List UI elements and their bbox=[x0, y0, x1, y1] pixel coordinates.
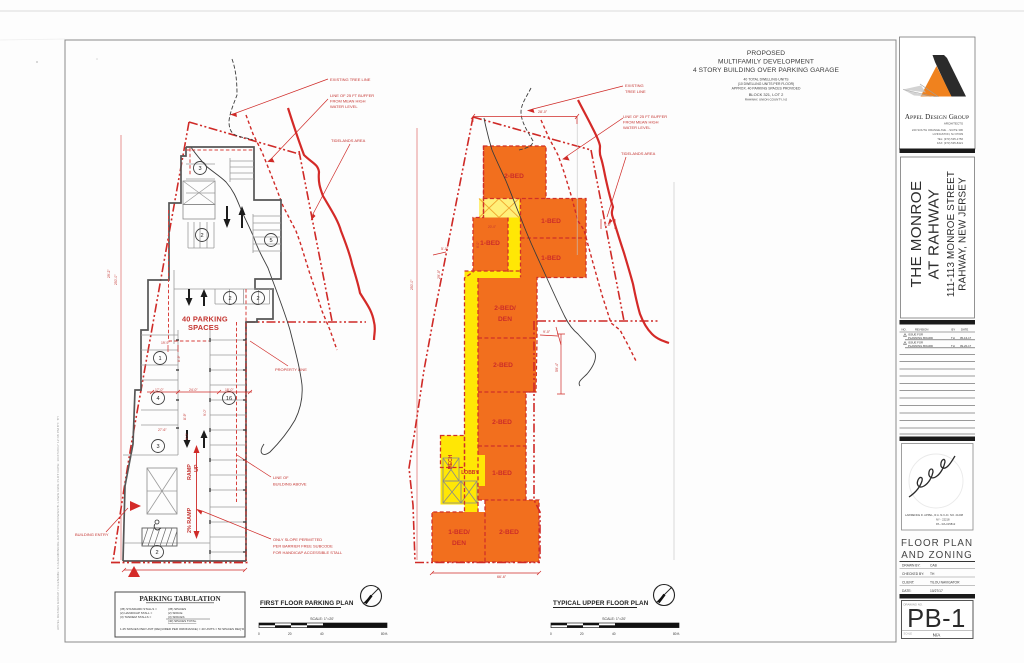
svg-text:PER BARRIER FREE SUBCODE: PER BARRIER FREE SUBCODE bbox=[273, 544, 333, 549]
svg-text:5'-0": 5'-0" bbox=[441, 247, 449, 251]
svg-text:FLOOR PLAN: FLOOR PLAN bbox=[901, 538, 973, 549]
svg-text:28'-0": 28'-0" bbox=[538, 110, 548, 114]
svg-text:PLANNING BOARD: PLANNING BOARD bbox=[908, 336, 933, 340]
svg-text:BLOCK 321, LOT 2: BLOCK 321, LOT 2 bbox=[749, 92, 784, 97]
svg-text:2: 2 bbox=[200, 233, 203, 239]
svg-text:DRAWN BY:: DRAWN BY: bbox=[902, 564, 920, 568]
svg-text:66'-6": 66'-6" bbox=[497, 575, 507, 579]
svg-text:1: 1 bbox=[158, 356, 161, 362]
svg-text:27'-6": 27'-6" bbox=[158, 428, 167, 432]
svg-text:18'-0": 18'-0" bbox=[225, 388, 234, 392]
svg-text:AT RAHWAY: AT RAHWAY bbox=[926, 189, 943, 280]
svg-text:1-BED: 1-BED bbox=[480, 240, 500, 247]
svg-text:LINE OF 25 FT BUFFER: LINE OF 25 FT BUFFER bbox=[623, 114, 667, 119]
svg-text:FROM MEAN HIGH: FROM MEAN HIGH bbox=[623, 120, 659, 125]
svg-text:24'-0": 24'-0" bbox=[189, 388, 198, 392]
svg-text:TYPICAL UPPER FLOOR PLAN: TYPICAL UPPER FLOOR PLAN bbox=[553, 600, 649, 607]
svg-text:8'-0": 8'-0" bbox=[476, 242, 480, 248]
svg-text:(10 DWELLING UNITS PER FLOOR): (10 DWELLING UNITS PER FLOOR) bbox=[738, 82, 794, 86]
svg-text:LINE OF: LINE OF bbox=[273, 475, 289, 480]
svg-text:MULTIFAMILY DEVELOPMENT: MULTIFAMILY DEVELOPMENT bbox=[718, 59, 814, 66]
svg-text:TH: TH bbox=[951, 336, 955, 340]
svg-text:DATE: DATE bbox=[961, 328, 968, 332]
svg-text:CLIENT:: CLIENT: bbox=[902, 581, 914, 585]
svg-text:LINE OF 25 FT BUFFER: LINE OF 25 FT BUFFER bbox=[330, 93, 374, 98]
svg-text:PA - RA-015812: PA - RA-015812 bbox=[936, 522, 956, 526]
svg-text:RAHWAY, NEW JERSEY: RAHWAY, NEW JERSEY bbox=[958, 177, 969, 291]
svg-text:DATE:: DATE: bbox=[902, 589, 912, 593]
svg-text:8'-9": 8'-9" bbox=[177, 354, 181, 362]
svg-text:2-BED: 2-BED bbox=[493, 362, 513, 369]
svg-text:9'-0": 9'-0" bbox=[185, 432, 189, 440]
svg-text:THE MONROE: THE MONROE bbox=[908, 181, 925, 288]
svg-text:8'-9": 8'-9" bbox=[183, 412, 187, 420]
svg-text:05-16-17: 05-16-17 bbox=[960, 336, 972, 340]
svg-text:LIVINGSTON, NJ 07039: LIVINGSTON, NJ 07039 bbox=[933, 132, 964, 136]
svg-text:1-BED/: 1-BED/ bbox=[448, 529, 470, 536]
svg-text:AND ZONING: AND ZONING bbox=[901, 550, 973, 561]
svg-text:APPEL DESIGN GROUP: APPEL DESIGN GROUP bbox=[905, 113, 969, 121]
svg-text:5: 5 bbox=[269, 238, 272, 244]
svg-text:250'-0": 250'-0" bbox=[114, 274, 118, 285]
svg-text:FAX: (973) 535-8421: FAX: (973) 535-8421 bbox=[937, 141, 963, 145]
svg-text:2: 2 bbox=[155, 550, 158, 556]
svg-text:PROPOSED: PROPOSED bbox=[747, 50, 785, 57]
svg-text:UP: UP bbox=[194, 464, 200, 472]
svg-text:CHECKED BY:: CHECKED BY: bbox=[902, 572, 924, 576]
svg-text:09-20-17: 09-20-17 bbox=[960, 344, 972, 348]
svg-text:2-BED: 2-BED bbox=[504, 173, 524, 180]
svg-text:40: 40 bbox=[320, 632, 324, 636]
svg-text:4 STORY BUILDING OVER PARKING: 4 STORY BUILDING OVER PARKING GARAGE bbox=[693, 67, 840, 74]
svg-text:SCALE: 1"=20': SCALE: 1"=20' bbox=[602, 617, 626, 621]
svg-text:80 ft.: 80 ft. bbox=[673, 632, 680, 636]
svg-text:EXISTING TREE LINE: EXISTING TREE LINE bbox=[330, 77, 371, 82]
svg-text:4: 4 bbox=[156, 396, 159, 402]
svg-text:20: 20 bbox=[580, 632, 584, 636]
svg-text:20'-0": 20'-0" bbox=[488, 225, 496, 229]
svg-text:17'-0": 17'-0" bbox=[155, 388, 164, 392]
svg-text:TILOU NAVIGATOR: TILOU NAVIGATOR bbox=[930, 581, 960, 585]
svg-text:2-BED: 2-BED bbox=[492, 419, 512, 426]
svg-text:CAB: CAB bbox=[930, 564, 938, 568]
svg-text:LAWRENCE D. APPEL, R.A. NJ LI: LAWRENCE D. APPEL, R.A. NJ LIC. NO. 2120… bbox=[905, 513, 964, 517]
svg-text:1-BED: 1-BED bbox=[492, 470, 512, 477]
svg-text:(3) TANDEM STALLS =: (3) TANDEM STALLS = bbox=[120, 615, 152, 619]
svg-text:BUILDING ENTRY: BUILDING ENTRY bbox=[75, 532, 109, 537]
svg-text:SPACES: SPACES bbox=[188, 323, 219, 332]
svg-text:19'-9": 19'-9" bbox=[161, 341, 170, 345]
svg-text:BUILDING ABOVE: BUILDING ABOVE bbox=[273, 482, 307, 487]
svg-text:WATER LEVEL: WATER LEVEL bbox=[330, 104, 358, 109]
svg-text:ARCHITECTS: ARCHITECTS bbox=[944, 122, 963, 126]
svg-text:0: 0 bbox=[258, 632, 260, 636]
svg-text:FROM MEAN HIGH: FROM MEAN HIGH bbox=[330, 99, 366, 104]
svg-text:N/A: N/A bbox=[933, 633, 942, 638]
svg-text:16: 16 bbox=[226, 396, 232, 402]
svg-text:2-BED/: 2-BED/ bbox=[494, 305, 516, 312]
svg-text:WATER LEVEL: WATER LEVEL bbox=[623, 125, 651, 130]
svg-text:MECH: MECH bbox=[448, 454, 454, 469]
svg-text:2-BED: 2-BED bbox=[499, 529, 519, 536]
svg-text:NO.: NO. bbox=[902, 328, 907, 332]
svg-text:0: 0 bbox=[550, 632, 552, 636]
svg-text:TH: TH bbox=[930, 572, 935, 576]
svg-text:(40) SPACES TOTAL: (40) SPACES TOTAL bbox=[168, 619, 197, 623]
svg-text:10/27/17: 10/27/17 bbox=[930, 589, 943, 593]
svg-text:FIRST FLOOR PARKING PLAN: FIRST FLOOR PARKING PLAN bbox=[260, 600, 354, 607]
svg-text:2: 2 bbox=[228, 296, 231, 302]
svg-text:9'-0": 9'-0" bbox=[543, 330, 551, 334]
svg-text:TIDELANDS AREA: TIDELANDS AREA bbox=[331, 138, 366, 143]
svg-text:59'-4": 59'-4" bbox=[555, 362, 559, 372]
svg-text:BY: BY bbox=[952, 328, 956, 332]
svg-text:29'-2": 29'-2" bbox=[107, 269, 111, 278]
svg-text:40 TOTAL DWELLING UNITS: 40 TOTAL DWELLING UNITS bbox=[744, 78, 790, 82]
svg-text:2% RAMP: 2% RAMP bbox=[187, 507, 193, 533]
svg-text:FOR HANDICAP ACCESSIBLE STALL: FOR HANDICAP ACCESSIBLE STALL bbox=[273, 550, 343, 555]
svg-text:RAMP: RAMP bbox=[187, 464, 193, 480]
svg-text:1-BED: 1-BED bbox=[541, 218, 561, 225]
svg-text:APPROX. 40 PARKING SPACES PROV: APPROX. 40 PARKING SPACES PROVIDED bbox=[732, 87, 801, 91]
svg-text:SCALE: SCALE bbox=[904, 632, 913, 636]
svg-text:TH: TH bbox=[951, 344, 955, 348]
svg-text:RAHWAY, UNION COUNTY, NJ: RAHWAY, UNION COUNTY, NJ bbox=[745, 98, 788, 102]
svg-text:DEN: DEN bbox=[452, 540, 466, 547]
svg-text:REVISION: REVISION bbox=[915, 328, 928, 332]
svg-text:9'-0": 9'-0" bbox=[203, 408, 207, 416]
svg-text:NY - 22218: NY - 22218 bbox=[936, 518, 950, 522]
svg-text:1.25 SPACES PER UNIT (REQUIRED: 1.25 SPACES PER UNIT (REQUIRED PER ORDIN… bbox=[120, 627, 245, 631]
svg-text:29'-0": 29'-0" bbox=[437, 269, 441, 279]
svg-text:DEN: DEN bbox=[498, 316, 512, 323]
svg-text:PARKING TABULATION: PARKING TABULATION bbox=[139, 595, 221, 603]
svg-text:APPEL DESIGN GROUP / FILENAM: APPEL DESIGN GROUP / FILENAME: K:\Jobs\M… bbox=[56, 416, 60, 630]
svg-text:3: 3 bbox=[156, 444, 159, 450]
svg-text:20: 20 bbox=[288, 632, 292, 636]
svg-text:PB-1: PB-1 bbox=[907, 605, 966, 633]
svg-text:TIDELANDS AREA: TIDELANDS AREA bbox=[621, 151, 656, 156]
svg-text:ONLY SLOPE PERMITTED: ONLY SLOPE PERMITTED bbox=[273, 537, 322, 542]
svg-text:TREE LINE: TREE LINE bbox=[625, 89, 646, 94]
svg-text:LOBBY: LOBBY bbox=[461, 470, 479, 476]
svg-text:SCALE: 1"=20': SCALE: 1"=20' bbox=[310, 617, 334, 621]
svg-text:EXISTING: EXISTING bbox=[625, 83, 644, 88]
svg-text:2: 2 bbox=[256, 296, 259, 302]
svg-text:PROPERTY LINE: PROPERTY LINE bbox=[275, 367, 307, 372]
svg-text:1-BED: 1-BED bbox=[541, 255, 561, 262]
svg-text:9'-0": 9'-0" bbox=[604, 223, 612, 227]
svg-text:40: 40 bbox=[612, 632, 616, 636]
svg-text:250'-0": 250'-0" bbox=[410, 279, 414, 290]
svg-text:80 ft.: 80 ft. bbox=[381, 632, 388, 636]
svg-text:111-113 MONROE STREET: 111-113 MONROE STREET bbox=[946, 171, 957, 297]
svg-text:PLANNING BOARD: PLANNING BOARD bbox=[908, 344, 933, 348]
svg-text:3: 3 bbox=[198, 166, 201, 172]
